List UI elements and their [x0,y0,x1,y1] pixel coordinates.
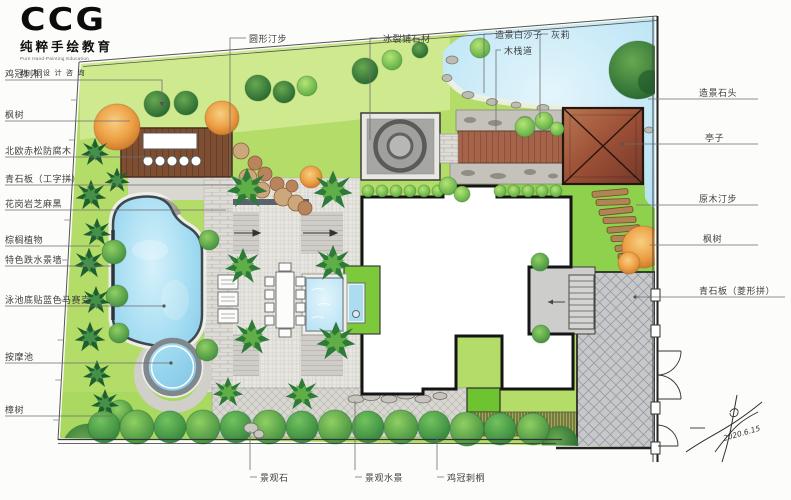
deck-stools [143,156,201,166]
label-landscape-stone: 景观石 [260,471,289,484]
gate-symbols [658,351,681,446]
side-courtyard [344,266,380,334]
label-coral-tree-left: 鸡冠刺桐 [5,67,43,80]
label-camphor-tree: 樟树 [5,403,24,416]
label-palm-plants: 棕榈植物 [5,233,43,246]
reflecting-pool [302,274,347,335]
label-bluestone-diamond: 青石板（菱形拼） [699,284,775,297]
label-round-steps: 圆形汀步 [249,32,287,45]
logo-title-cn: 纯粹手绘教育 [20,36,113,55]
label-pine-deck: 北欧赤松防腐木 [5,144,72,157]
deck-table [143,133,197,149]
label-white-sand: 造景白沙子 [495,28,543,41]
label-granite: 花岗岩芝麻黑 [5,197,62,210]
logo-title-en: Pure Hand-Painting Education [20,56,113,61]
label-waterfall-wall: 特色跌水景墙 [5,253,62,266]
garden-plan-page: 2020.6.15 CCG 纯粹手绘教育 Pure Hand-Painting … [0,0,791,500]
label-scenic-rocks: 造景石头 [699,86,737,99]
label-log-steps: 原木汀步 [699,192,737,205]
label-fukien-tea: 灰莉 [551,28,570,41]
stairs [529,267,595,334]
label-pavilion: 亭子 [705,131,724,144]
signature: 2020.6.15 [686,395,762,462]
plan-canvas: 2020.6.15 [0,0,791,500]
pavilion [563,108,643,184]
loungers [218,275,238,323]
label-bluestone-i: 青石板（工字拼） [5,172,81,185]
label-maple-left: 枫树 [5,108,24,121]
label-boardwalk: 木栈道 [504,44,533,57]
label-spa: 按摩池 [5,350,34,363]
label-coral-tree-bottom: 鸡冠刺桐 [447,471,485,484]
label-pool-mosaic: 泳池底贴蓝色马赛克 [5,293,91,306]
label-maple-right: 枫树 [703,232,722,245]
label-water-feature: 景观水景 [365,471,403,484]
logo-brand: CCG [20,6,124,35]
label-icecrack-stone: 冰裂铺石材 [383,32,431,45]
